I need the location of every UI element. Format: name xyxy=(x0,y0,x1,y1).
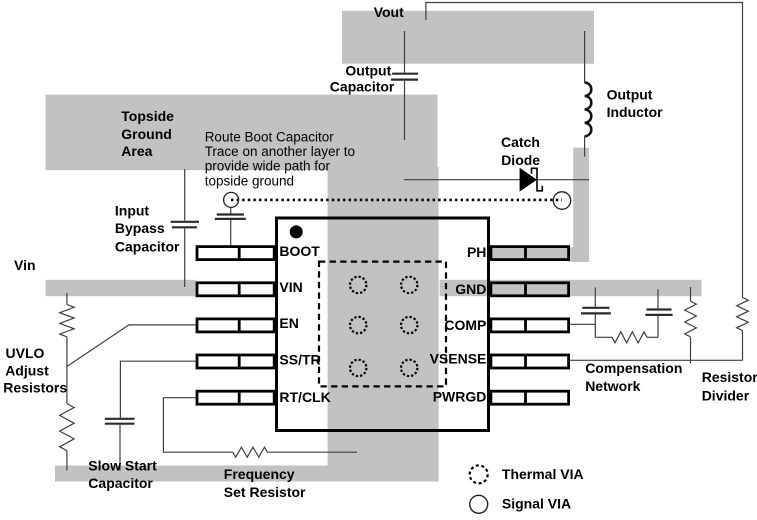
svg-text:Capacitor: Capacitor xyxy=(330,79,395,95)
svg-text:Slow Start: Slow Start xyxy=(88,457,157,473)
svg-text:Capacitor: Capacitor xyxy=(88,475,153,491)
svg-text:Network: Network xyxy=(585,378,640,394)
svg-text:Output: Output xyxy=(345,63,391,79)
svg-text:Frequency: Frequency xyxy=(224,466,295,482)
svg-text:EN: EN xyxy=(279,315,298,331)
svg-text:Set Resistor: Set Resistor xyxy=(224,484,306,500)
svg-text:Compensation: Compensation xyxy=(585,360,682,376)
svg-text:Inductor: Inductor xyxy=(607,104,664,120)
svg-text:Area: Area xyxy=(121,143,152,159)
svg-text:Diode: Diode xyxy=(501,152,540,168)
svg-text:Trace on another layer to: Trace on another layer to xyxy=(205,144,355,159)
svg-text:Signal VIA: Signal VIA xyxy=(502,496,571,512)
svg-text:Vin: Vin xyxy=(14,257,36,273)
svg-text:Thermal VIA: Thermal VIA xyxy=(502,466,584,482)
svg-text:GND: GND xyxy=(455,281,486,297)
svg-text:PWRGD: PWRGD xyxy=(433,389,487,405)
svg-text:Capacitor: Capacitor xyxy=(115,239,180,255)
svg-text:PH: PH xyxy=(467,244,486,260)
svg-text:VIN: VIN xyxy=(279,279,302,295)
svg-text:SS/TR: SS/TR xyxy=(279,351,320,367)
svg-text:Bypass: Bypass xyxy=(115,220,165,236)
svg-text:Output: Output xyxy=(607,87,653,103)
svg-text:BOOT: BOOT xyxy=(279,243,320,259)
svg-text:Ground: Ground xyxy=(121,126,172,142)
svg-text:Adjust: Adjust xyxy=(5,362,49,378)
svg-text:Vout: Vout xyxy=(374,4,404,20)
svg-text:topside ground: topside ground xyxy=(205,173,294,188)
svg-text:UVLO: UVLO xyxy=(6,345,45,361)
svg-text:provide wide path for: provide wide path for xyxy=(205,159,331,174)
svg-text:Topside: Topside xyxy=(121,108,174,124)
svg-text:Resistors: Resistors xyxy=(3,379,67,395)
svg-text:Divider: Divider xyxy=(702,388,750,404)
svg-text:Catch: Catch xyxy=(501,134,540,150)
svg-text:Resistor: Resistor xyxy=(702,369,757,385)
svg-text:Route Boot Capacitor: Route Boot Capacitor xyxy=(205,130,335,145)
svg-text:COMP: COMP xyxy=(444,317,486,333)
svg-text:Input: Input xyxy=(115,202,150,218)
svg-text:VSENSE: VSENSE xyxy=(430,351,487,367)
svg-text:RT/CLK: RT/CLK xyxy=(279,389,330,405)
